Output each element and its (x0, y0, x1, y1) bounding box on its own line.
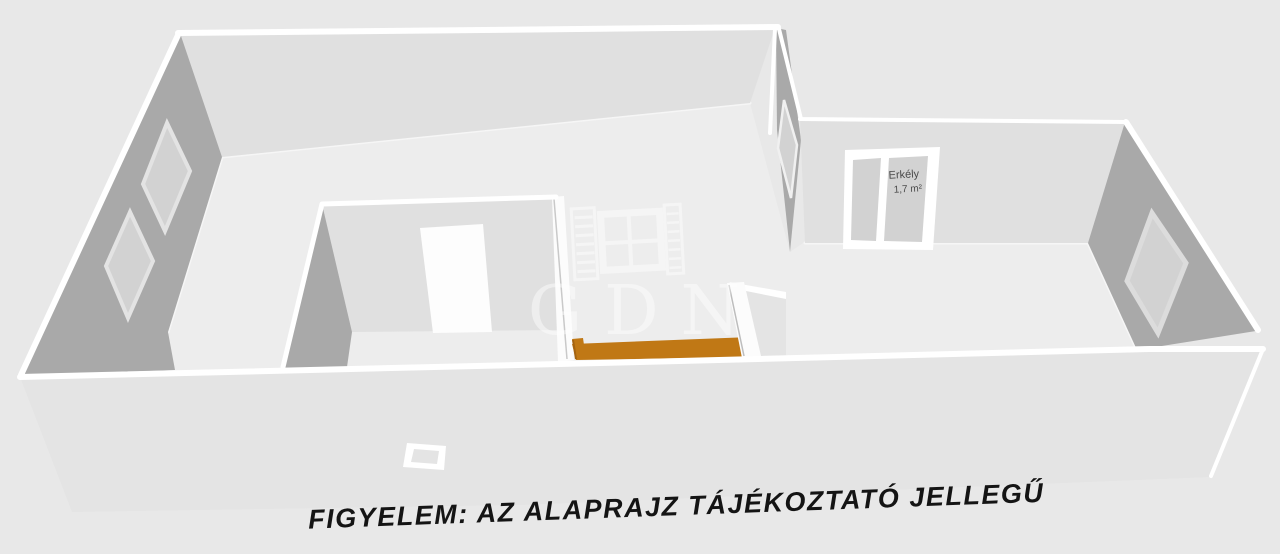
floorplan-3d-render: GDN Erkély 1,7 m² (0, 0, 1280, 554)
watermark-text: GDN (528, 272, 762, 351)
front-wall-hatch-pane (411, 449, 439, 464)
balcony-area-label: 1,7 m² (893, 183, 923, 196)
floorplan-screenshot: GDN Erkély 1,7 m² FIGYELEM: AZ ALAPRAJZ … (0, 0, 1280, 554)
balcony-door (843, 147, 940, 250)
balcony-name-label: Erkély (888, 168, 920, 182)
balcony-door-pane-left (851, 158, 881, 241)
